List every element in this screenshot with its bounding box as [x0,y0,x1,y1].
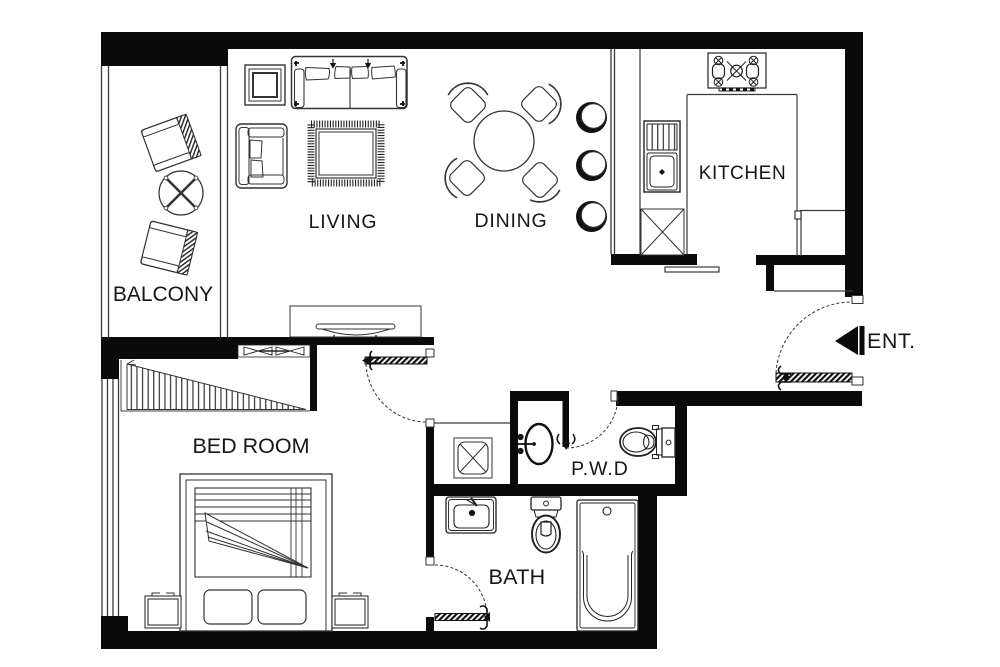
svg-text:DINING: DINING [474,210,547,232]
svg-text:ENT.: ENT. [867,329,916,353]
svg-text:BATH: BATH [489,565,546,589]
svg-text:BALCONY: BALCONY [113,283,213,306]
svg-text:P.W.D: P.W.D [571,458,629,480]
svg-text:BED ROOM: BED ROOM [192,434,309,458]
svg-text:KITCHEN: KITCHEN [699,163,787,184]
svg-text:LIVING: LIVING [309,211,378,233]
